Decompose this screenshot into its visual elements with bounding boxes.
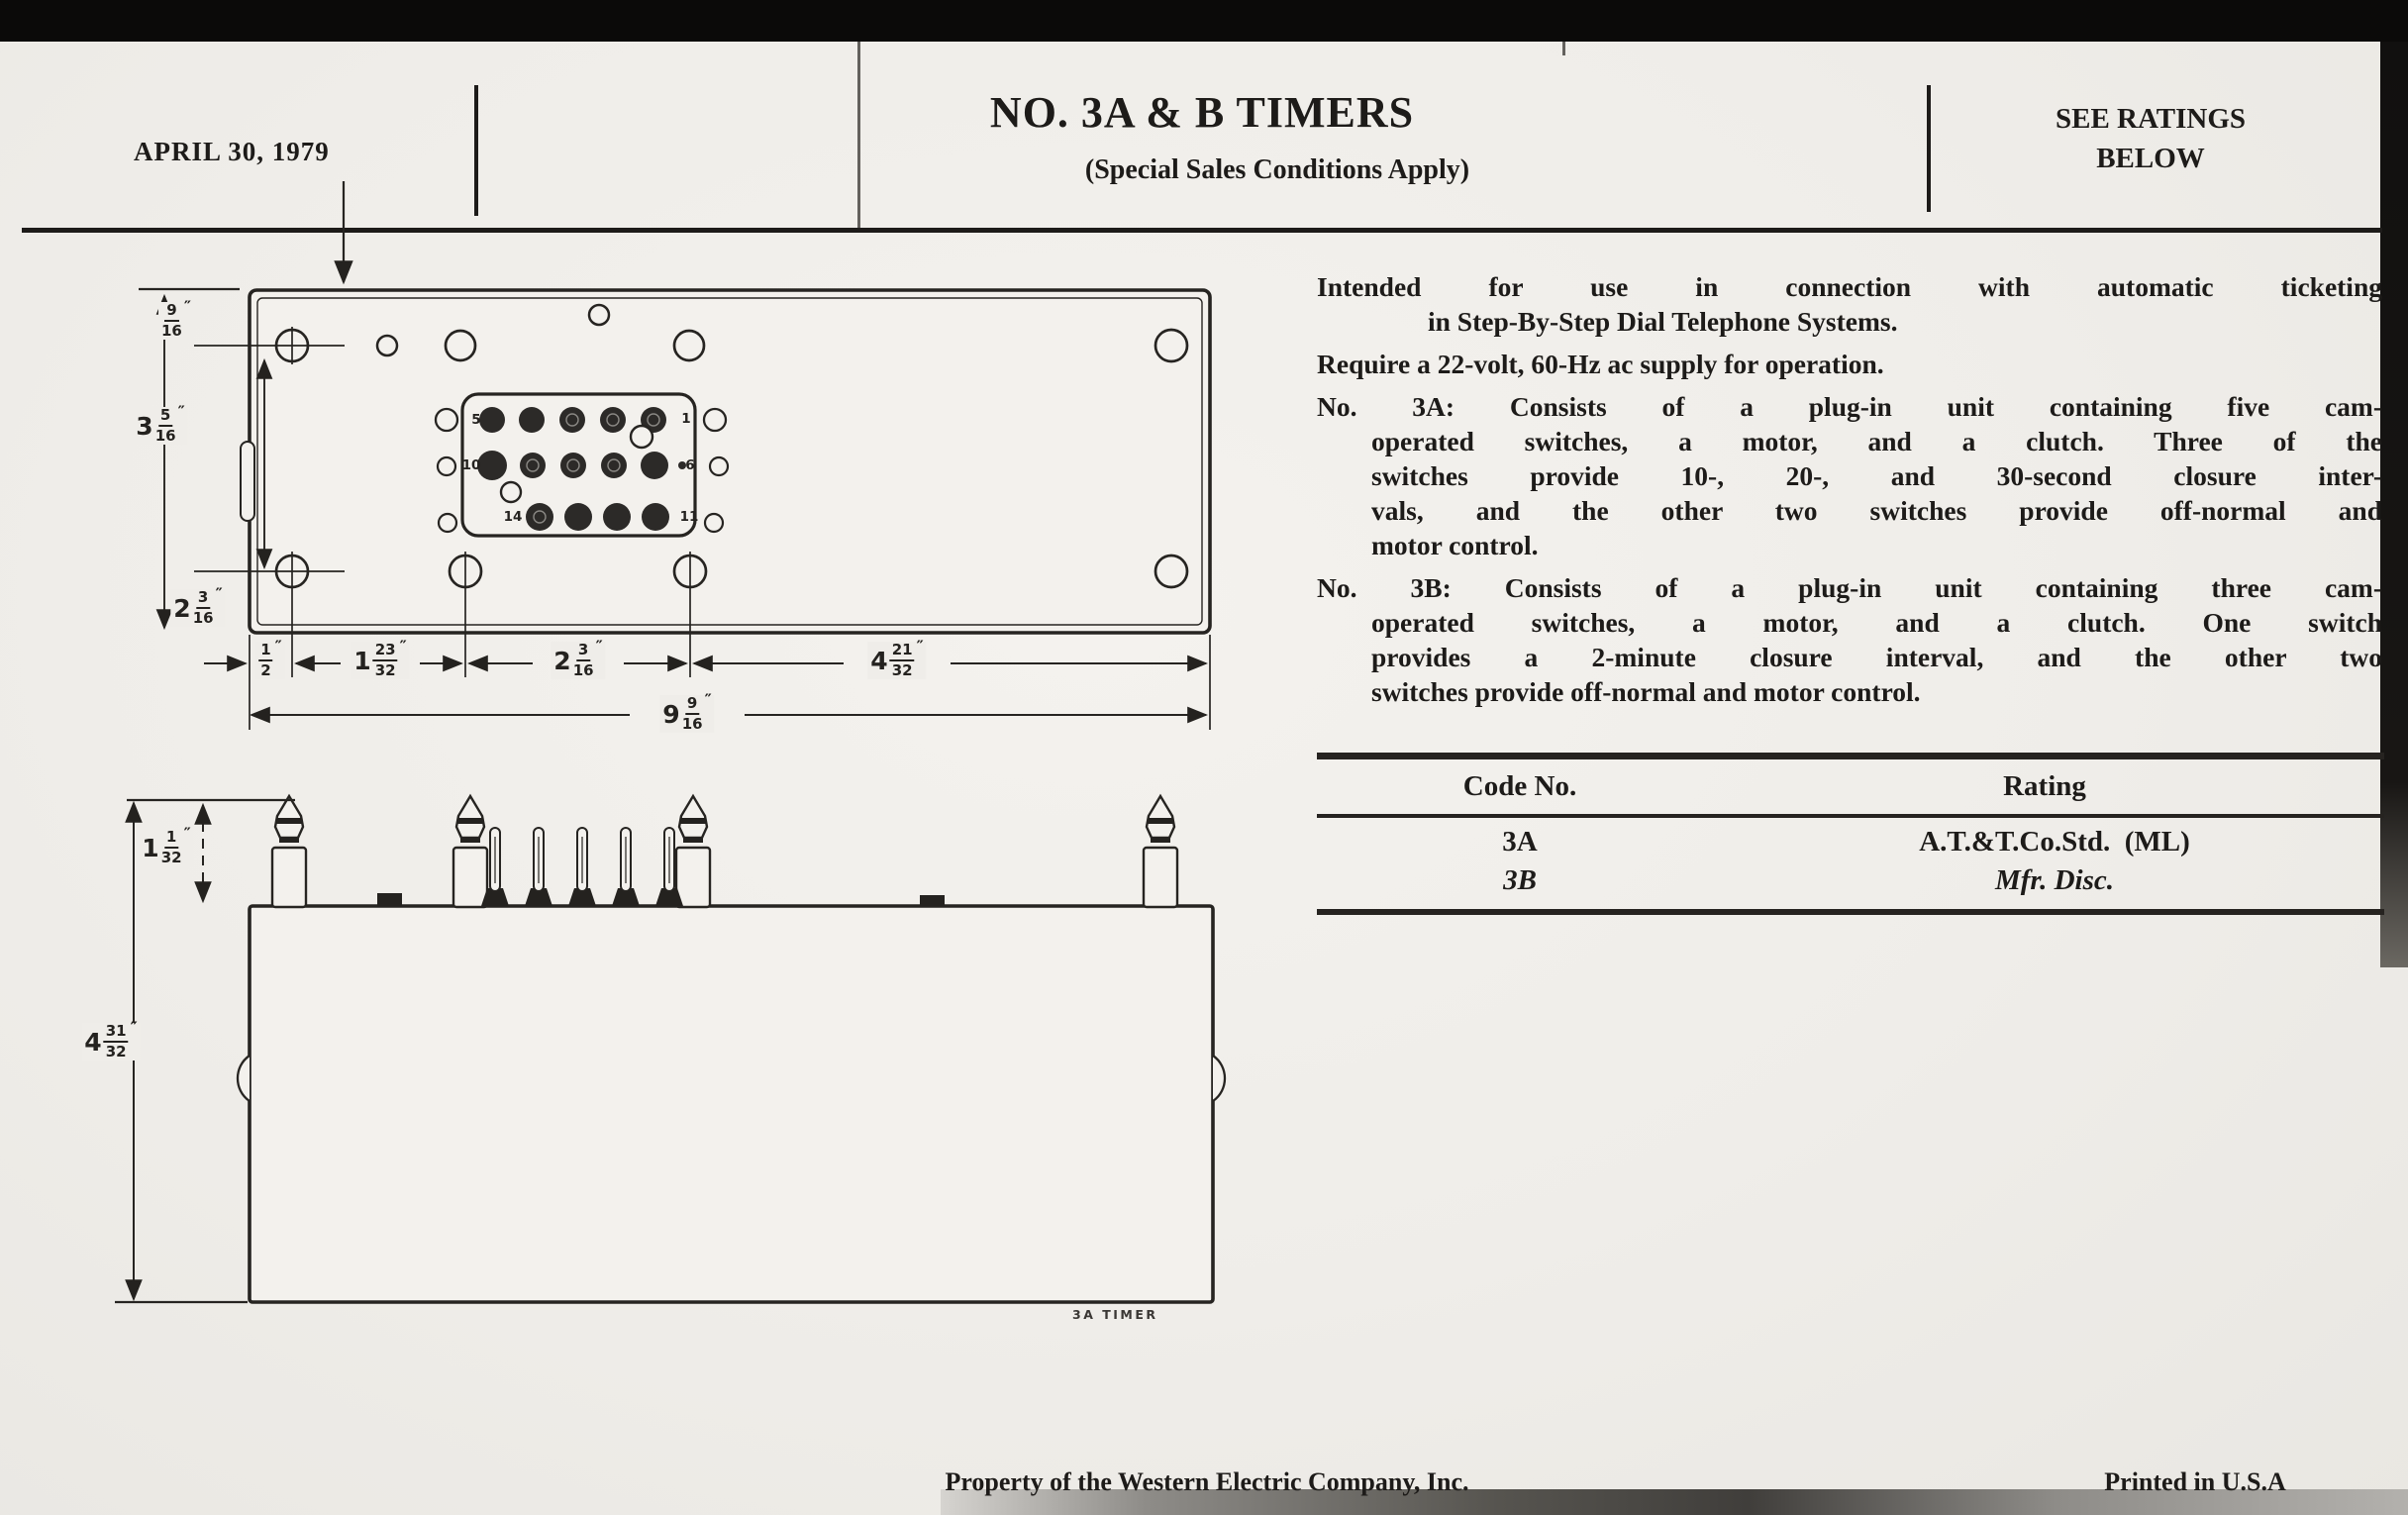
timer-plate-outline	[250, 290, 1210, 633]
ratings-table-rows: 3AA.T.&T.Co.Std. (ML)3BMfr. Disc.	[1317, 826, 2384, 903]
page-title: NO. 3A & B TIMERS	[990, 87, 1414, 138]
table-row: 3BMfr. Disc.	[1317, 864, 2384, 903]
dimension-label: 916″	[158, 302, 194, 340]
table-header-rating: Rating	[2003, 770, 2086, 803]
contact-pin	[612, 828, 640, 906]
description-line: motor control.	[1317, 528, 2382, 562]
drawing-caption: 3A TIMER	[1072, 1307, 1158, 1322]
footer-printed-note: Printed in U.S.A	[2104, 1467, 2285, 1497]
description-line: in Step-By-Step Dial Telephone Systems.	[1317, 304, 2382, 339]
table-row: 3AA.T.&T.Co.Std. (ML)	[1317, 826, 2384, 864]
table-cell-rating: Mfr. Disc.	[1995, 864, 2114, 897]
description-line: operated switches, a motor, and a clutch…	[1317, 605, 2382, 640]
table-header-code: Code No.	[1463, 770, 1576, 803]
plunger	[272, 796, 306, 907]
pin-number-label: 6	[685, 457, 694, 473]
scan-black-bar-right	[2380, 42, 2408, 967]
description-block: Intended for use in connection with auto…	[1317, 269, 2382, 717]
scanned-datasheet-page: APRIL 30, 1979 NO. 3A & B TIMERS (Specia…	[0, 0, 2408, 1515]
header-divider-right	[1927, 85, 1931, 212]
ratings-note-line1: SEE RATINGS	[2056, 99, 2246, 139]
pin-number-label: 10	[462, 457, 481, 473]
table-cell-code: 3B	[1503, 864, 1537, 897]
pin-number-label: 5	[471, 412, 480, 428]
description-line: vals, and the other two switches provide…	[1317, 493, 2382, 528]
table-cell-code: 3A	[1502, 826, 1537, 858]
ratings-table: Code No. Rating 3AA.T.&T.Co.Std. (ML)3BM…	[1317, 753, 2384, 931]
pin-number-label: 11	[680, 509, 699, 525]
table-cell-rating: A.T.&T.Co.Std. (ML)	[1919, 826, 2190, 858]
contact-pin	[525, 828, 552, 906]
table-rule-bottom	[1317, 909, 2384, 915]
timer-body-outline	[250, 906, 1213, 1302]
ratings-note-line2: BELOW	[2056, 139, 2246, 178]
dimension-label: 12″	[255, 642, 285, 679]
dimension-label: 12332″	[351, 642, 409, 679]
side-view-drawing	[50, 782, 1327, 1337]
description-line: Require a 22-volt, 60-Hz ac supply for o…	[1317, 347, 2382, 381]
footer-property-note: Property of the Western Electric Company…	[945, 1467, 1468, 1497]
plunger	[676, 796, 710, 907]
left-edge-tab	[241, 442, 254, 521]
plunger	[453, 796, 487, 907]
table-rule-mid	[1317, 814, 2384, 818]
description-line: No. 3B: Consists of a plug-in unit conta…	[1317, 570, 2382, 605]
pin-number-label: 1	[681, 411, 690, 427]
dimension-label: 9916″	[659, 695, 714, 733]
scan-tick-mark	[1562, 42, 1565, 55]
table-rule-top	[1317, 753, 2384, 759]
dimension-label: 3516″	[133, 407, 187, 445]
dimension-label: 2316″	[551, 642, 605, 679]
dimension-label: 42132″	[867, 642, 926, 679]
description-line: operated switches, a motor, and a clutch…	[1317, 424, 2382, 458]
description-line: provides a 2-minute closure interval, an…	[1317, 640, 2382, 674]
description-line: No. 3A: Consists of a plug-in unit conta…	[1317, 389, 2382, 424]
dimension-label: 1132″	[139, 829, 193, 866]
dimension-label: 43132″	[81, 1023, 140, 1060]
scan-black-bar-top	[0, 0, 2408, 42]
contact-pin	[568, 828, 596, 906]
plunger	[1144, 796, 1177, 907]
description-line: Intended for use in connection with auto…	[1317, 269, 2382, 304]
description-line: switches provide off-normal and motor co…	[1317, 674, 2382, 709]
ratings-note: SEE RATINGS BELOW	[2056, 99, 2246, 178]
description-line: switches provide 10-, 20-, and 30-second…	[1317, 458, 2382, 493]
dimension-label: 2316″	[170, 589, 225, 627]
pin-number-label: 14	[504, 509, 523, 525]
